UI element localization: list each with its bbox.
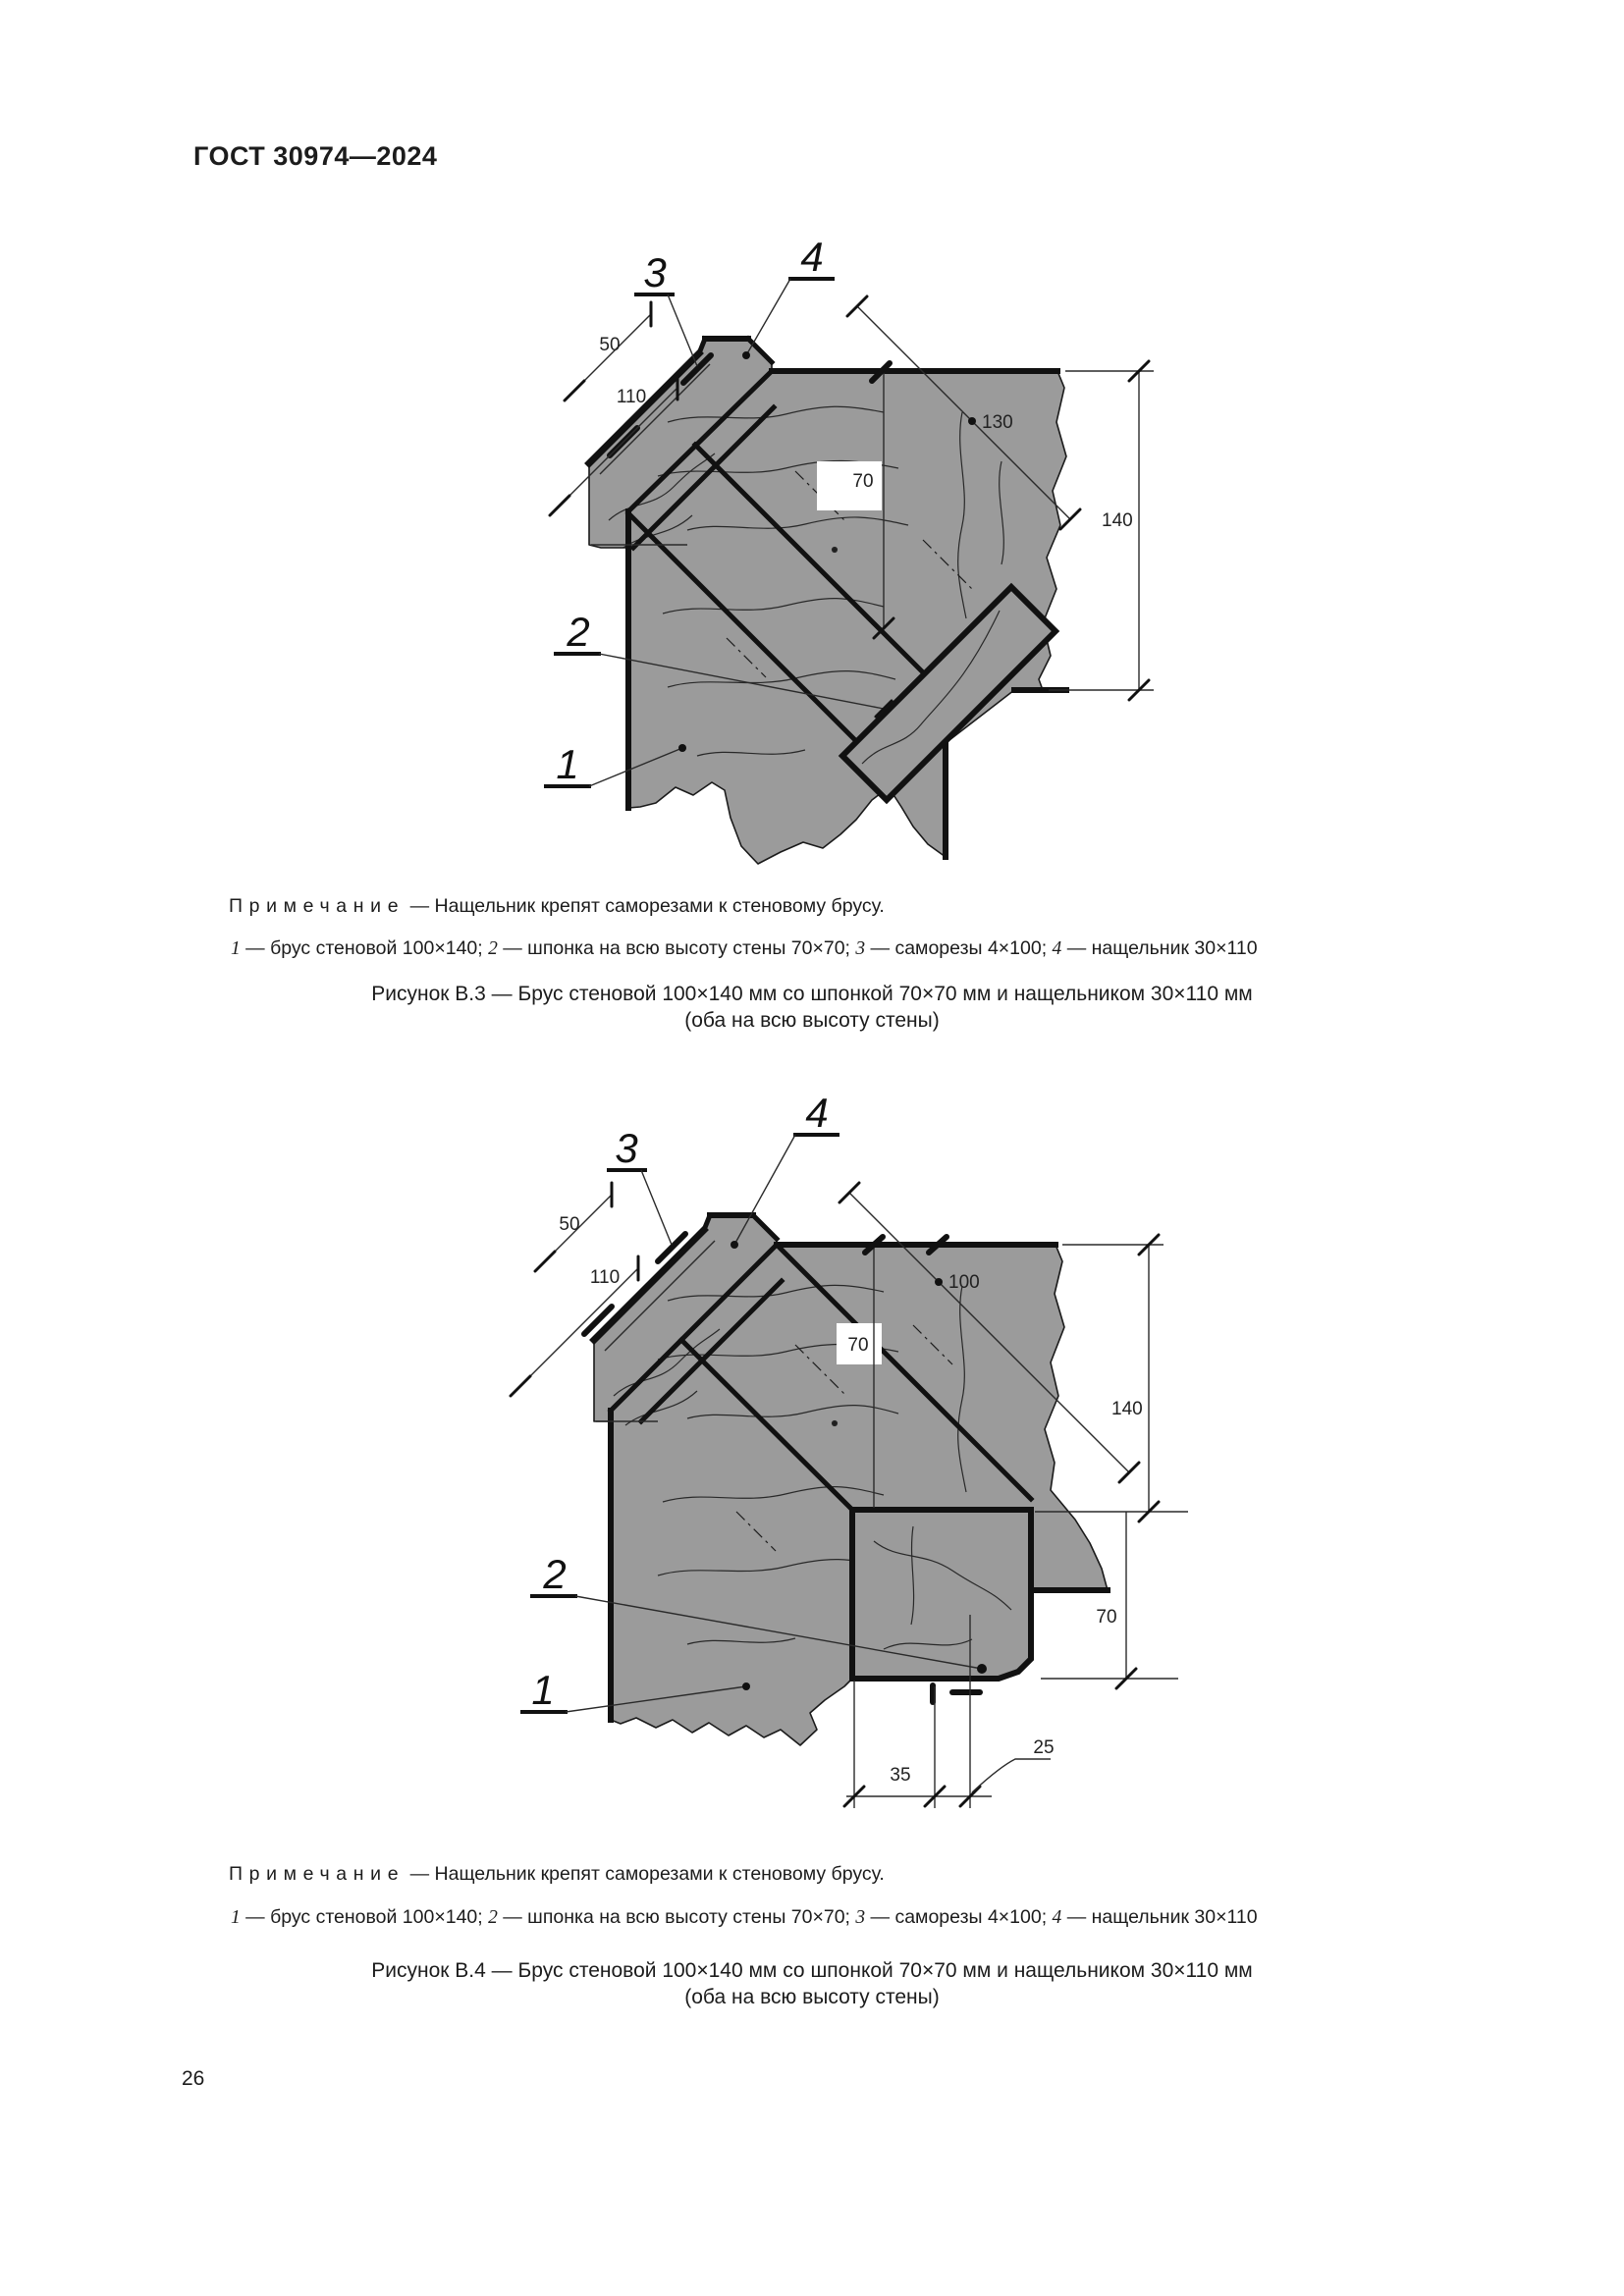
note-label-b4: Примечание	[229, 1863, 405, 1885]
note-label-b3: Примечание	[229, 895, 405, 917]
dim-70-b3: 70	[852, 471, 873, 492]
dim-140-b3: 140	[1102, 510, 1133, 531]
note-text-b4: Нащельник крепят саморезами к стеновому …	[435, 1863, 885, 1885]
legend-num: 4	[1053, 938, 1062, 959]
note-b4: Примечание — Нащельник крепят саморезами…	[229, 1863, 1466, 1886]
caption-b3-line1: Рисунок В.3 — Брус стеновой 100×140 мм с…	[0, 981, 1624, 1007]
legend-num: 1	[231, 1907, 241, 1928]
callout-4-b4: 4	[805, 1090, 828, 1136]
legend-num: 4	[1053, 1907, 1062, 1928]
dim-70-right-b4: 70	[1096, 1607, 1116, 1628]
note-b3: Примечание — Нащельник крепят саморезами…	[229, 895, 1466, 918]
note-text-b3: Нащельник крепят саморезами к стеновому …	[435, 895, 885, 917]
callout-1-b4: 1	[531, 1667, 554, 1713]
legend-num: 2	[488, 1907, 498, 1928]
dim-140-b4: 140	[1111, 1399, 1143, 1419]
dim-50-b3: 50	[599, 335, 620, 355]
legend-b3: 1 — брус стеновой 100×140; 2 — шпонка на…	[231, 937, 1497, 960]
dim-110-b3: 110	[617, 387, 646, 407]
note-dash-b3: —	[410, 895, 435, 917]
caption-b4-line1: Рисунок В.4 — Брус стеновой 100×140 мм с…	[0, 1957, 1624, 1984]
dim-130-b3: 130	[982, 412, 1013, 433]
figure-b3-drawing: 50 110 130 70 140 3 4 2 1	[373, 226, 1188, 893]
dim-35-b4: 35	[890, 1765, 910, 1786]
caption-b3: Рисунок В.3 — Брус стеновой 100×140 мм с…	[0, 981, 1624, 1034]
document-page: ГОСТ 30974—2024	[0, 0, 1624, 2296]
callout-2-b4: 2	[542, 1551, 566, 1597]
callout-2-b3: 2	[566, 609, 589, 655]
callout-3-b3: 3	[643, 249, 666, 295]
document-header: ГОСТ 30974—2024	[193, 141, 437, 172]
dim-70-mid-b4: 70	[847, 1335, 868, 1356]
legend-num: 3	[855, 938, 865, 959]
note-dash-b4: —	[410, 1863, 435, 1885]
figure-b4-drawing: 50 110 100 70 140 70 35 25 3 4 2 1	[363, 1080, 1208, 1865]
dim-50-b4: 50	[559, 1214, 579, 1235]
caption-b3-line2: (оба на всю высоту стены)	[0, 1007, 1624, 1034]
dim-100-b4: 100	[948, 1272, 980, 1293]
dim-25-b4: 25	[1033, 1737, 1054, 1758]
caption-b4-line2: (оба на всю высоту стены)	[0, 1984, 1624, 2010]
callout-3-b4: 3	[615, 1125, 637, 1171]
spline-square-b4	[852, 1510, 1031, 1679]
legend-num: 2	[488, 938, 498, 959]
legend-num: 1	[231, 938, 241, 959]
caption-b4: Рисунок В.4 — Брус стеновой 100×140 мм с…	[0, 1957, 1624, 2010]
legend-b4: 1 — брус стеновой 100×140; 2 — шпонка на…	[231, 1906, 1497, 1929]
page-number: 26	[182, 2067, 204, 2091]
callout-1-b3: 1	[556, 741, 578, 787]
legend-num: 3	[855, 1907, 865, 1928]
dim-110-b4: 110	[590, 1267, 620, 1288]
callout-4-b3: 4	[800, 234, 823, 280]
